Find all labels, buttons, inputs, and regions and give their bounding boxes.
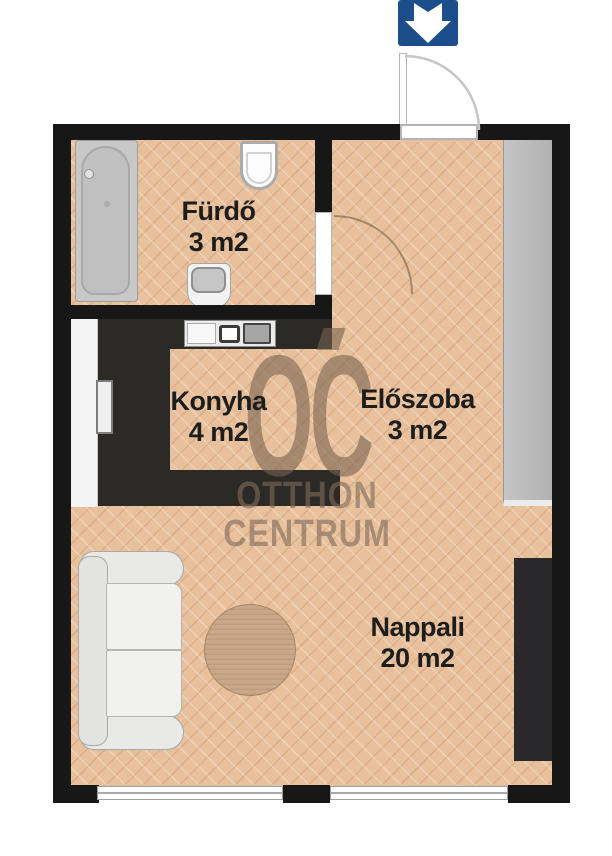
room-label-konyha: Konyha 4 m2 [131, 386, 306, 448]
toilet-seat [246, 152, 272, 184]
wardrobe [514, 558, 552, 761]
bathtub-icon [75, 140, 138, 302]
wall-bottom-1 [53, 785, 99, 803]
wall-top-left [53, 124, 400, 140]
room-area: 3 m2 [330, 415, 505, 446]
bathroom-door-leaf [315, 212, 332, 295]
bathtub-faucet [84, 169, 94, 179]
room-name: Előszoba [330, 384, 505, 415]
entrance-door-threshold [400, 124, 478, 140]
room-name: Nappali [330, 612, 505, 643]
wall-bath-kitchen [71, 305, 332, 319]
wall-bath-hall-bottom [315, 293, 332, 321]
sofa-seat [106, 650, 182, 717]
appliance-icon [96, 380, 113, 434]
tall-cabinet [71, 319, 98, 507]
window-living-left [97, 786, 283, 800]
wall-right [552, 124, 570, 803]
round-rug-icon [204, 604, 296, 696]
kitchen-sink-unit [184, 320, 276, 347]
sofa-seat [106, 583, 182, 650]
sofa-backrest [78, 556, 108, 746]
washbasin-icon [187, 263, 231, 308]
toilet-icon [240, 141, 278, 190]
wall-bottom-2 [283, 785, 330, 803]
sink-icon [219, 325, 240, 343]
wall-left [53, 124, 71, 803]
room-area: 4 m2 [131, 417, 306, 448]
wall-bottom-3 [508, 785, 570, 803]
room-label-eloszoba: Előszoba 3 m2 [330, 384, 505, 446]
room-area: 3 m2 [131, 227, 306, 258]
wall-bath-hall-top [315, 139, 332, 215]
room-name: Fürdő [131, 196, 306, 227]
room-name: Konyha [131, 386, 306, 417]
stove-icon [243, 323, 271, 344]
arrow-down-icon [398, 0, 458, 46]
room-label-nappali: Nappali 20 m2 [330, 612, 505, 674]
window-living-right [330, 786, 508, 800]
entrance-door-leaf [399, 53, 407, 130]
kitchen-worktop [187, 323, 216, 344]
entrance-arrow-icon [398, 0, 458, 46]
room-label-furdo: Fürdő 3 m2 [131, 196, 306, 258]
hall-closet [503, 139, 553, 506]
bathtub-drain [104, 201, 110, 207]
washbasin-bowl [191, 267, 226, 293]
kitchen-wall-bottom [98, 470, 340, 506]
entrance-door-arc [405, 56, 479, 130]
room-area: 20 m2 [330, 643, 505, 674]
floor-plan: OC OTTHON CENTRUM Fürdő 3 m2 Konyha 4 m2… [0, 0, 612, 856]
